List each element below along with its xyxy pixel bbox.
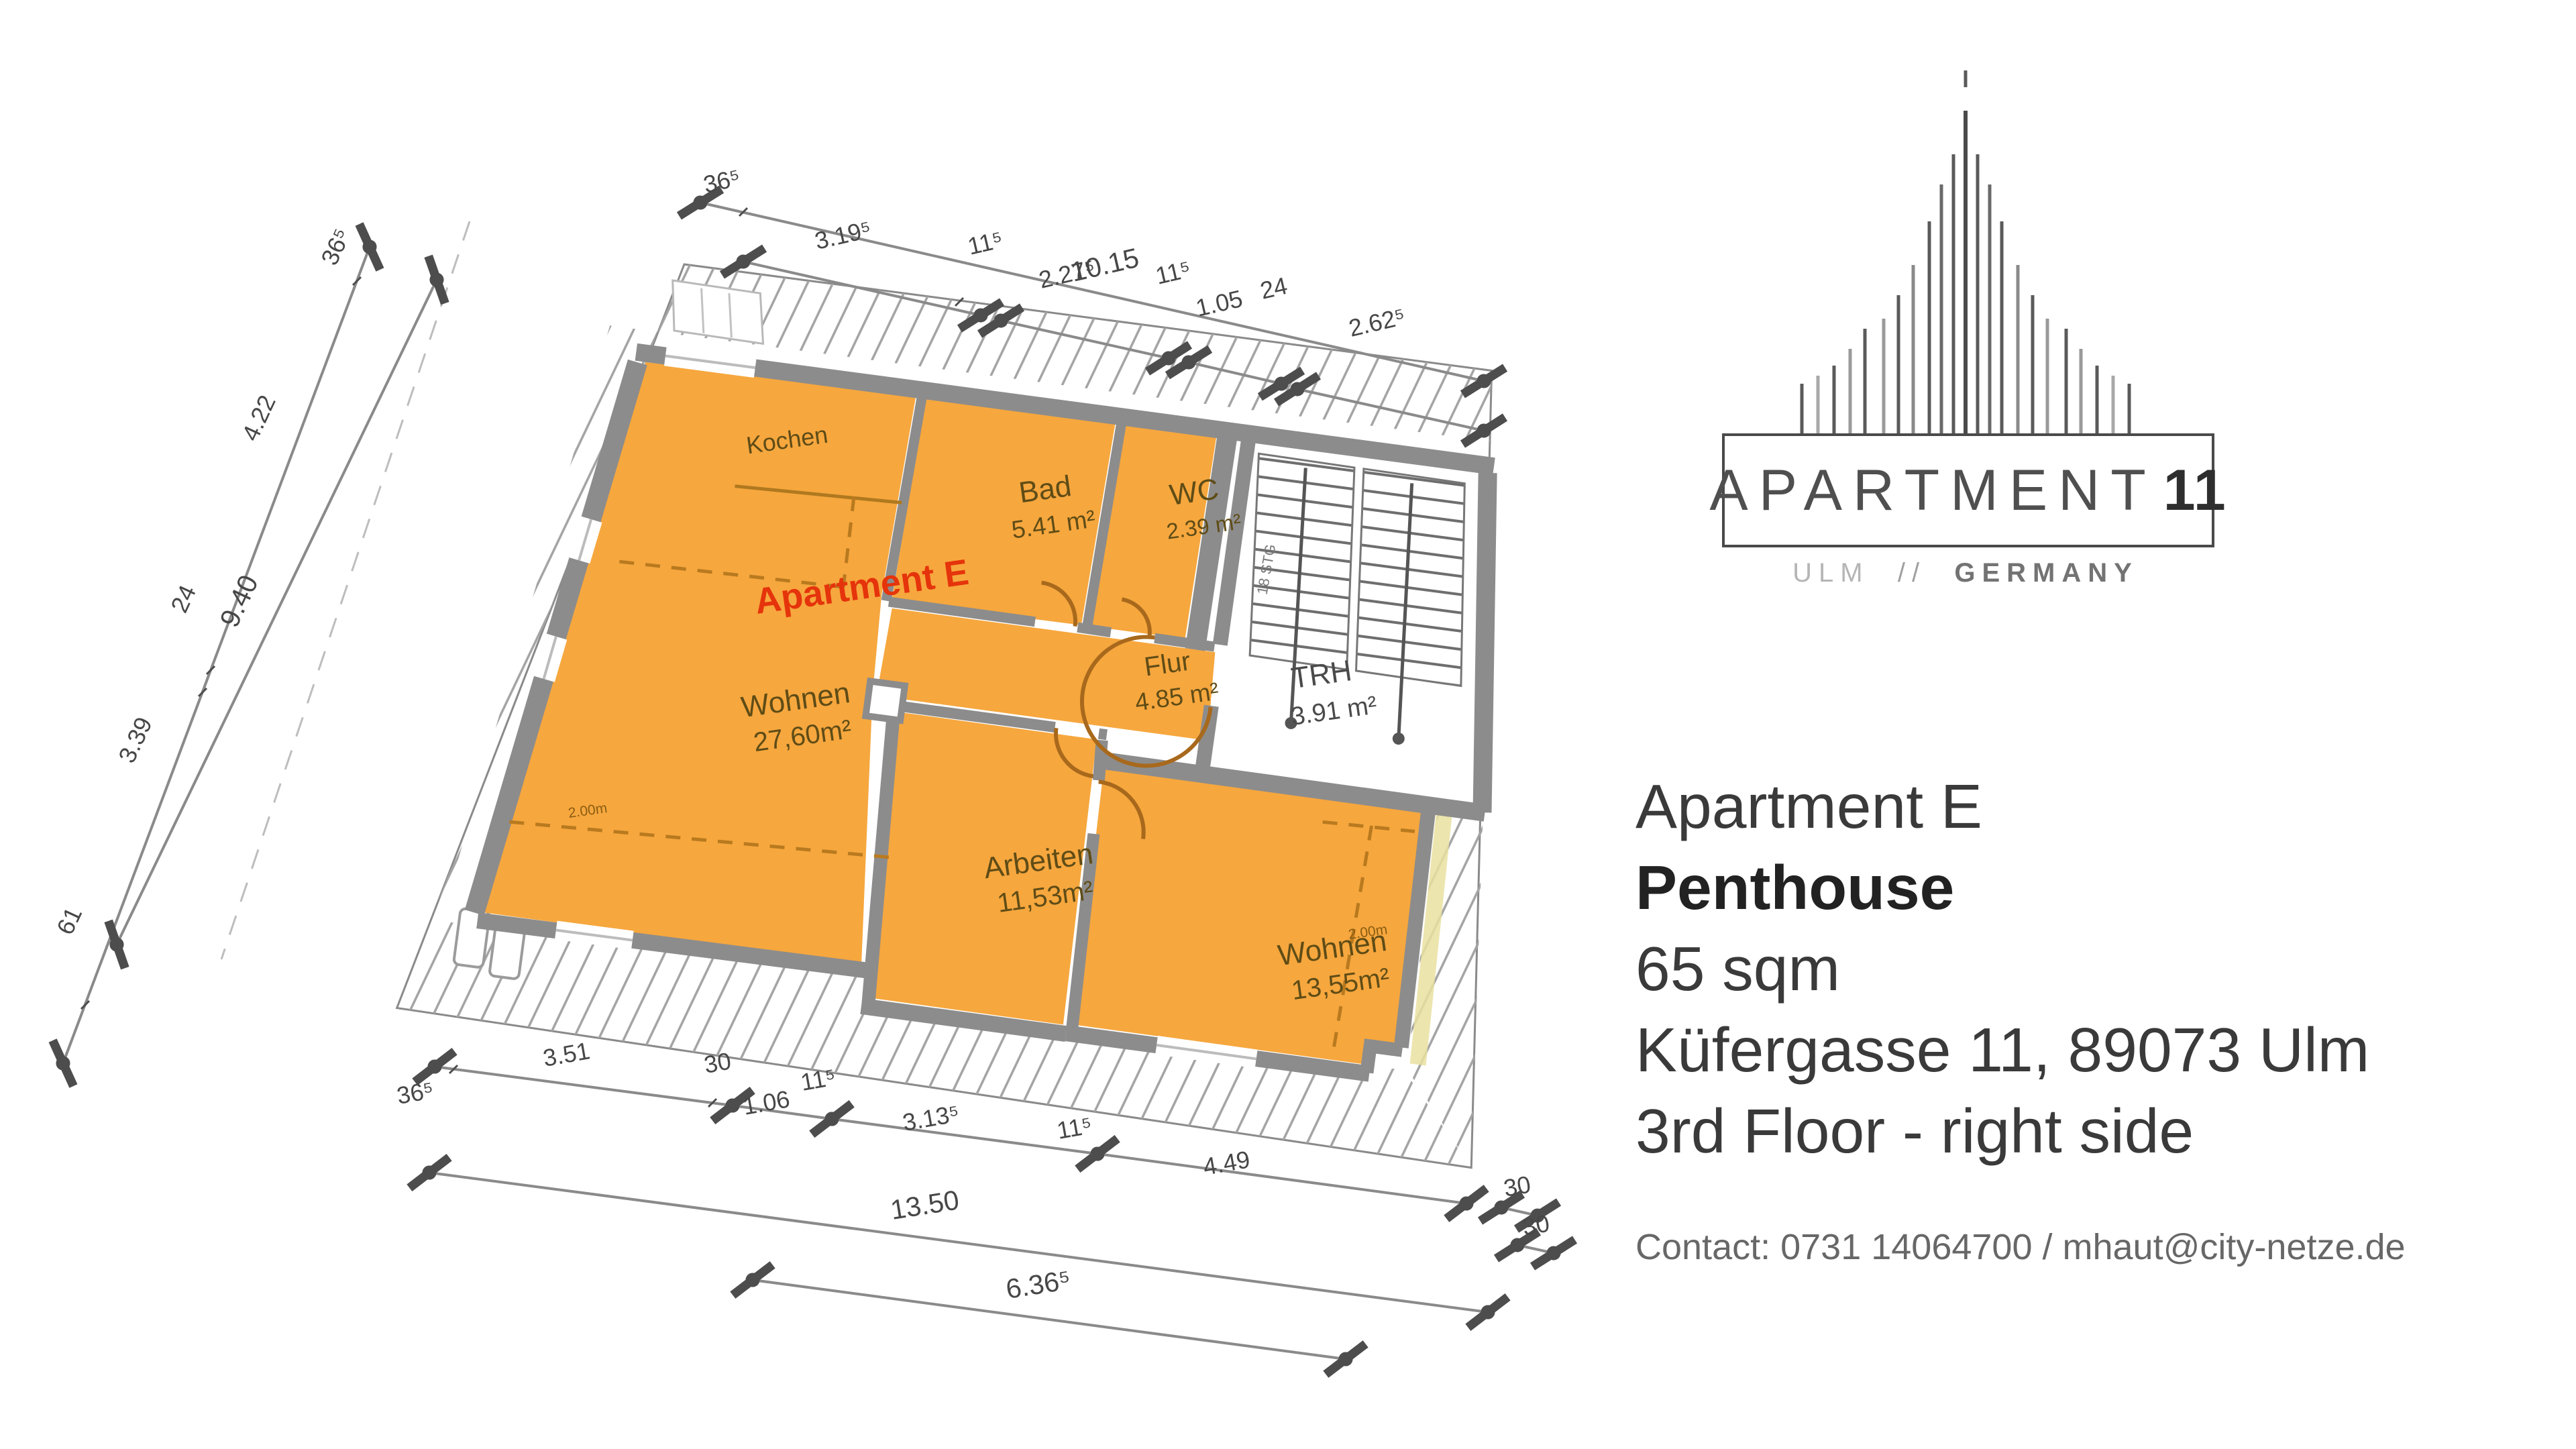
- tagline-separator: //: [1898, 558, 1926, 588]
- dim-label: 11⁵: [965, 225, 1006, 260]
- apartment-info: Apartment E Penthouse 65 sqm Küfergasse …: [1635, 766, 2369, 1172]
- dim-label: 2.27⁵: [1036, 254, 1098, 294]
- contact-line: Contact: 0731 14064700 / mhaut@city-netz…: [1635, 1226, 2406, 1268]
- dim-label: 11⁵: [1055, 1111, 1094, 1144]
- dim-label: 1.05: [1193, 284, 1246, 322]
- dim-label: 24: [1258, 272, 1290, 305]
- info-address: Küfergasse 11, 89073 Ulm: [1635, 1010, 2369, 1091]
- logo-number: 11: [2163, 458, 2227, 524]
- dim-label: 3.51: [541, 1036, 592, 1072]
- dim-label: 11⁵: [798, 1063, 838, 1095]
- dim-label: 11⁵: [1153, 255, 1193, 290]
- room-label-wc: WC: [1167, 472, 1220, 512]
- info-apartment-name: Apartment E: [1635, 766, 2369, 847]
- logo-tagline: ULM // GERMANY: [1722, 558, 2209, 588]
- info-type: Penthouse: [1635, 847, 2369, 928]
- dim-label: 4.49: [1201, 1145, 1252, 1181]
- room-wohnen-small: [1070, 766, 1430, 1069]
- dim-label: 6.36⁵: [1004, 1264, 1073, 1305]
- info-floor: 3rd Floor - right side: [1635, 1091, 2369, 1172]
- dim-label: 36⁵: [701, 163, 743, 198]
- dim-label: 36⁵: [394, 1076, 435, 1110]
- dim-label: 36⁵: [315, 224, 356, 269]
- dim-label: 30: [1501, 1171, 1533, 1202]
- dim-label: 30: [702, 1047, 733, 1079]
- dim-label: 2.62⁵: [1346, 303, 1408, 342]
- logo: APARTMENT 11 ULM // GERMANY: [1704, 60, 2241, 617]
- logo-word: APARTMENT: [1709, 458, 2156, 524]
- logo-box: APARTMENT 11: [1722, 433, 2214, 547]
- dim-label: 9.40: [213, 570, 264, 632]
- plan-rotated-group: [394, 239, 1574, 1167]
- dim-label: 3.19⁵: [812, 215, 874, 255]
- info-size: 65 sqm: [1635, 928, 2369, 1010]
- tagline-country: GERMANY: [1954, 558, 2138, 588]
- flyer-page: 36⁵ 10.15 3.19⁵ 11⁵ 2.27⁵ 11⁵ 1.05 24 2.…: [0, 0, 2576, 1449]
- tagline-city: ULM: [1792, 558, 1869, 588]
- dim-label: 3.39: [113, 713, 158, 767]
- dim-label: 1.06: [741, 1085, 792, 1120]
- dim-label: 24: [165, 581, 201, 617]
- dim-label: 13.50: [888, 1184, 961, 1225]
- logo-skyline-icon: [1704, 60, 2241, 436]
- dim-label: 30: [1520, 1210, 1552, 1241]
- dim-label: 3.13⁵: [900, 1099, 961, 1136]
- dim-label: 4.22: [236, 391, 281, 445]
- chimney: [865, 682, 904, 720]
- dim-label: 61: [51, 903, 87, 939]
